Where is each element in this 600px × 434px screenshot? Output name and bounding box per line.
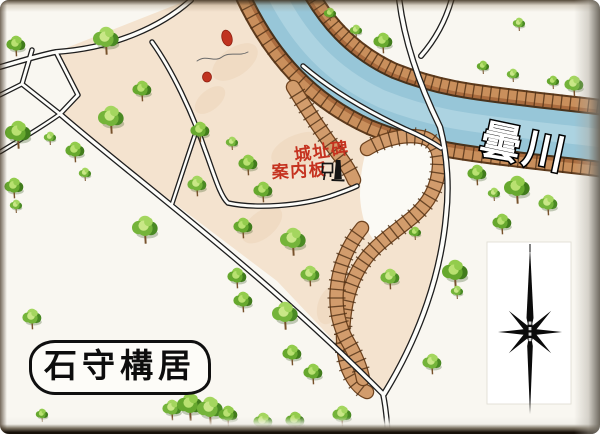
tree-icon — [233, 292, 252, 313]
tree-icon — [547, 76, 560, 89]
tree-icon — [227, 268, 246, 289]
tree-icon — [492, 214, 511, 235]
tree-icon — [422, 354, 441, 375]
tree-icon — [282, 345, 301, 366]
tree-icon — [44, 132, 57, 145]
tree-icon — [6, 36, 25, 57]
info-board-label: 案内板 — [270, 159, 328, 183]
compass-rose — [487, 242, 571, 414]
tree-icon — [332, 406, 351, 427]
tree-icon — [253, 413, 272, 434]
tree-icon — [538, 195, 557, 216]
tree-icon — [65, 142, 84, 163]
tree-icon — [513, 18, 526, 31]
tree-icon — [477, 61, 490, 74]
tree-icon — [564, 76, 583, 97]
map-frame: 曇川 城址碑 案内板 石守構居 — [0, 0, 600, 434]
tree-icon — [504, 176, 530, 204]
tree-icon — [36, 409, 49, 422]
tree-icon — [303, 364, 322, 385]
road-line — [0, 84, 22, 95]
tree-icon — [442, 260, 468, 288]
red-shrine-mark — [203, 72, 212, 82]
tree-icon — [467, 165, 486, 186]
tree-icon — [79, 168, 92, 181]
tree-icon — [285, 412, 304, 433]
title-label: 石守構居 — [44, 351, 196, 384]
tree-icon — [488, 188, 501, 201]
map-paper: 曇川 城址碑 案内板 石守構居 — [0, 0, 600, 434]
tree-icon — [507, 69, 520, 82]
title-box: 石守構居 — [29, 340, 211, 395]
tree-icon — [132, 216, 158, 244]
tree-icon — [10, 200, 23, 213]
tree-icon — [22, 309, 41, 330]
tree-icon — [451, 286, 464, 299]
tree-icon — [4, 178, 23, 199]
tree-icon — [373, 33, 392, 54]
